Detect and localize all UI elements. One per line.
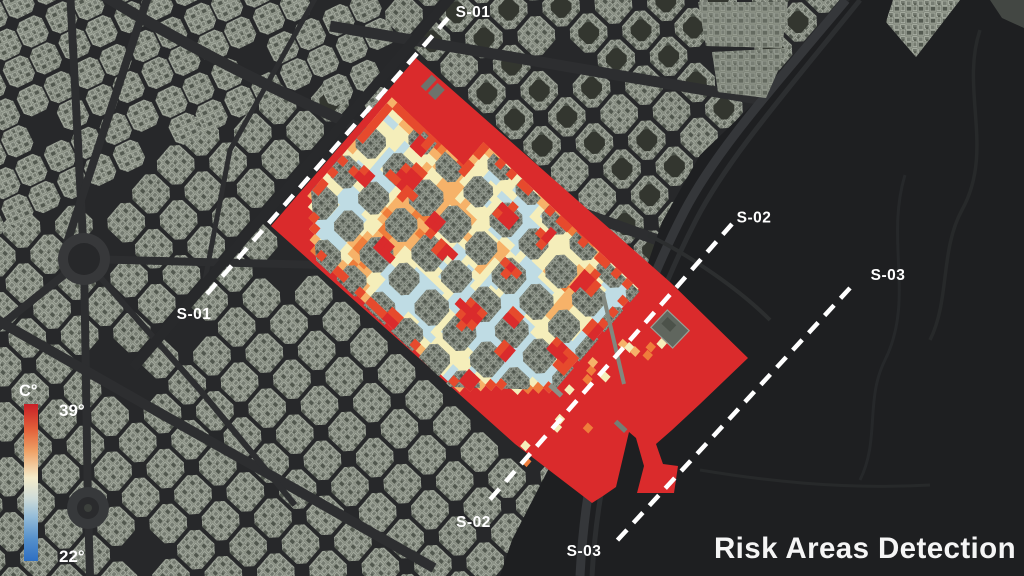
svg-text:39°: 39° bbox=[59, 401, 85, 420]
svg-text:Risk Areas Detection: Risk Areas Detection bbox=[714, 532, 1016, 565]
svg-text:S-01: S-01 bbox=[456, 4, 491, 21]
svg-text:S-03: S-03 bbox=[871, 267, 906, 284]
svg-text:S-01: S-01 bbox=[177, 306, 212, 323]
svg-text:S-02: S-02 bbox=[737, 210, 772, 227]
svg-text:S-02: S-02 bbox=[456, 514, 491, 531]
svg-text:S-03: S-03 bbox=[567, 543, 602, 560]
svg-text:C°: C° bbox=[19, 382, 38, 400]
svg-text:22°: 22° bbox=[59, 547, 85, 566]
